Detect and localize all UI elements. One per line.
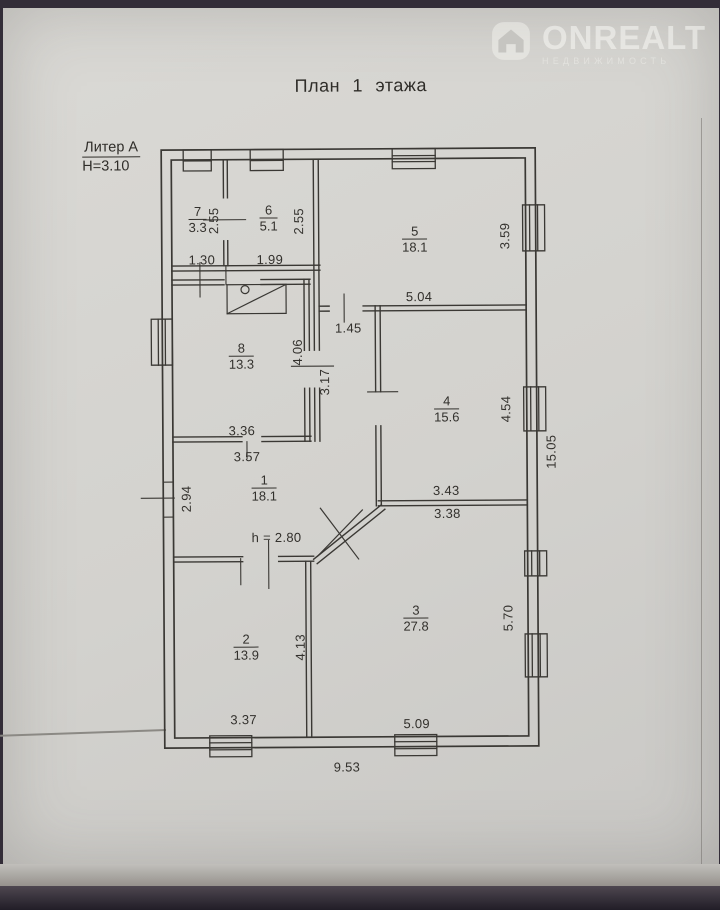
dim-room3-width: 5.09 bbox=[403, 716, 430, 731]
dim-room7-height: 2.55 bbox=[206, 208, 221, 235]
dim-room5-width: 5.04 bbox=[406, 289, 433, 304]
room-2-number: 2 bbox=[233, 633, 258, 648]
room-6-number: 6 bbox=[259, 203, 277, 218]
dim-room6-height: 2.55 bbox=[291, 208, 306, 235]
room-5-number: 5 bbox=[402, 225, 427, 240]
room-4-number: 4 bbox=[434, 394, 459, 409]
dim-room8-east: 4.06 bbox=[290, 339, 305, 366]
dim-room8-width-ext: 3.57 bbox=[234, 449, 261, 464]
dim-room8-width: 3.36 bbox=[229, 423, 256, 438]
room-2-area: 13.9 bbox=[234, 648, 259, 663]
room-7-area: 3.3 bbox=[189, 220, 207, 235]
room-1-area: 18.1 bbox=[252, 488, 277, 503]
scanned-floor-plan-photo: ONREALT НЕДВИЖИМОСТЬ План 1 этажа Литер … bbox=[0, 0, 720, 910]
room-5-label: 5 18.1 bbox=[402, 225, 427, 255]
dim-room1-height: 2.94 bbox=[179, 486, 194, 513]
room-8-label: 8 13.3 bbox=[229, 342, 254, 372]
dim-hall-height: 3.17 bbox=[317, 369, 332, 396]
room-5-area: 18.1 bbox=[402, 240, 427, 255]
dim-room2-height: 4.13 bbox=[293, 634, 308, 661]
ceiling-height-note: h = 2.80 bbox=[252, 530, 302, 545]
room-3-number: 3 bbox=[403, 604, 428, 619]
dim-hall-width: 1.45 bbox=[335, 320, 362, 335]
dim-room4-width: 3.43 bbox=[433, 483, 460, 498]
room-1-label: 1 18.1 bbox=[251, 473, 276, 503]
room-3-label: 3 27.8 bbox=[403, 604, 428, 634]
room-6-area: 5.1 bbox=[260, 218, 278, 233]
dim-room3-height: 5.70 bbox=[500, 605, 515, 632]
dim-room4-height: 4.54 bbox=[498, 396, 513, 423]
room-8-number: 8 bbox=[229, 342, 254, 357]
dim-total-width: 9.53 bbox=[334, 759, 361, 774]
room-2-label: 2 13.9 bbox=[233, 633, 258, 663]
room-1-number: 1 bbox=[251, 473, 276, 488]
stove-symbol bbox=[227, 284, 286, 313]
window-symbols bbox=[150, 148, 548, 757]
dim-room5-height: 3.59 bbox=[497, 223, 512, 250]
dim-total-height: 15.05 bbox=[543, 435, 558, 469]
exterior-wall bbox=[161, 148, 539, 748]
room-3-area: 27.8 bbox=[403, 619, 428, 634]
floor-plan: План 1 этажа Литер А Н=3.10 bbox=[0, 0, 720, 910]
dim-room7-width: 1.30 bbox=[189, 252, 216, 267]
room-7-number: 7 bbox=[188, 205, 206, 220]
dim-room2-width: 3.37 bbox=[230, 712, 257, 727]
room-4-area: 15.6 bbox=[434, 409, 459, 424]
room-4-label: 4 15.6 bbox=[434, 394, 459, 424]
dim-room6-width: 1.99 bbox=[257, 252, 284, 267]
interior-walls bbox=[171, 158, 529, 738]
dim-room4-width-ext: 3.38 bbox=[434, 506, 461, 521]
room-8-area: 13.3 bbox=[229, 357, 254, 372]
room-6-label: 6 5.1 bbox=[259, 203, 277, 233]
room-7-label: 7 3.3 bbox=[188, 205, 206, 235]
